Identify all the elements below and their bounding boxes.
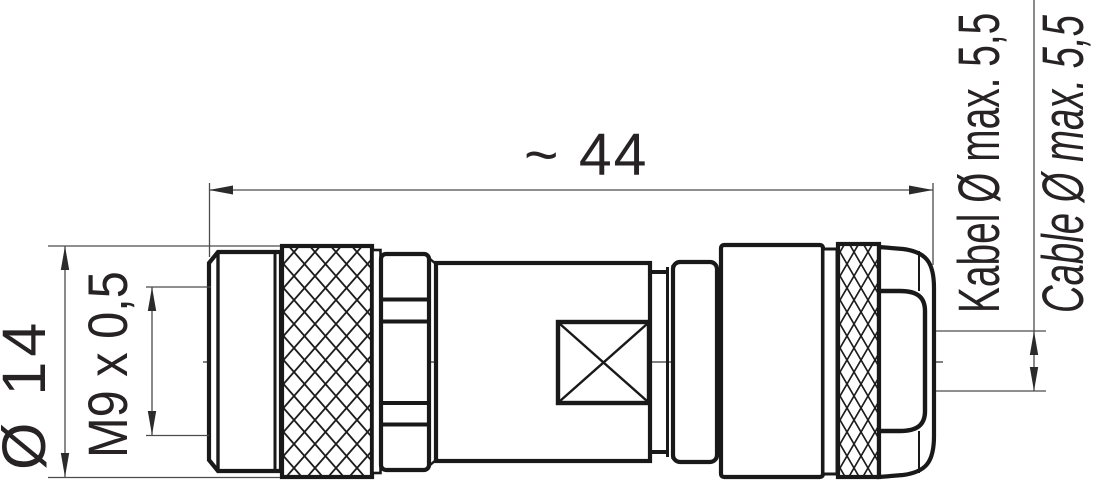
dimension-thread [146,287,211,436]
hex-nut [381,254,437,470]
cable-diameter-label-german: Kabel Ø max. 5,5 [957,13,1002,313]
rear-groove [823,249,837,474]
arrow-up [61,246,69,270]
thread-size-label: M9 x 0,5 [86,271,130,458]
connector-body [209,244,934,477]
strain-relief-knurl [838,244,879,477]
cable-gland-cap [879,247,934,477]
rear-body [721,245,823,477]
intermediate-ring [673,262,717,462]
cable-diameter-label-english: Cable Ø max. 5,5 [1041,15,1086,313]
connector-drawing [0,0,1103,480]
technical-drawing-page: ~ 44 Ø 14 M9 x 0,5 Kabel Ø max. 5,5 Cabl… [0,0,1103,480]
arrow-down [1030,367,1038,391]
arrow-right [909,186,933,195]
thread-ring [209,252,281,471]
arrow-down [61,453,69,477]
arrow-up [148,287,156,311]
outer-diameter-label: Ø 14 [1,318,49,470]
arrow-up [1030,331,1038,355]
cross-section-marker [558,322,649,403]
arrow-down [148,411,156,435]
arrow-left [209,186,233,195]
coupling-knurl [282,246,372,477]
length-dimension-label: ~ 44 [524,132,648,178]
